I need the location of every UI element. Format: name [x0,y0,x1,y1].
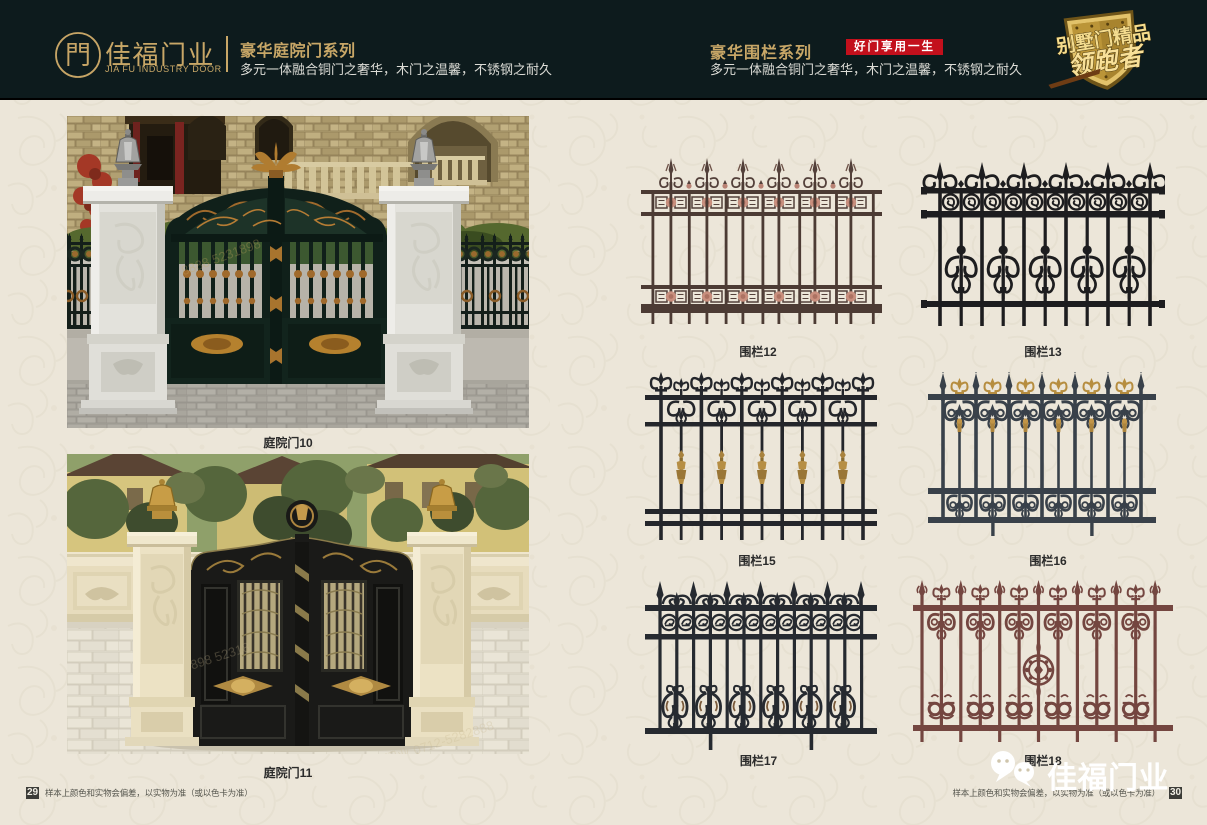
svg-text:門: 門 [65,41,91,70]
